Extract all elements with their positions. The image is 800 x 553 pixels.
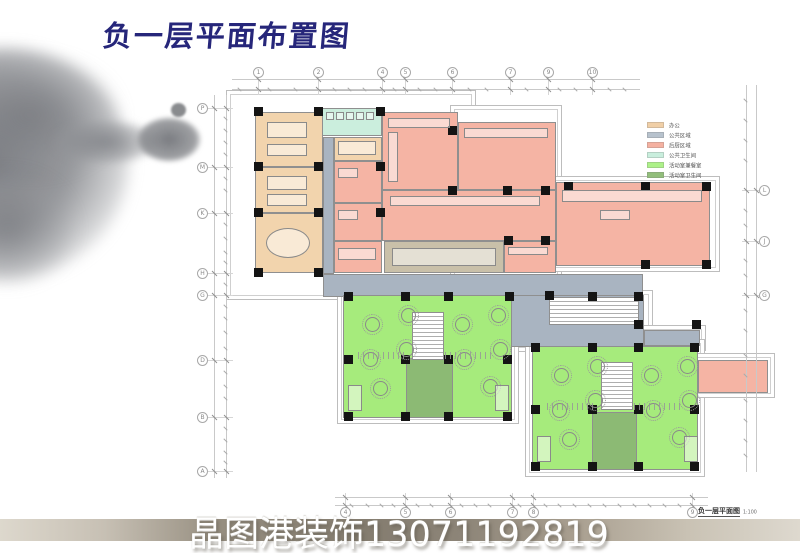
page-title: 负一层平面布置图 [101,13,353,55]
dimension-tick [622,87,626,91]
room-office [255,112,323,167]
furniture-desk [338,210,358,220]
axis-bubble: D [197,355,208,366]
column-marker [504,236,513,245]
axis-bubble: 9 [687,507,698,518]
column-marker [503,186,512,195]
dimension-tick [484,87,488,91]
axis-bubble: B [197,412,208,423]
furniture-dining-table [392,248,496,266]
column-marker [634,292,643,301]
drawing-name: 负一层平面图 [698,507,740,517]
furniture-round-table [493,342,508,357]
dimension-tick [573,87,577,91]
furniture-round-table [644,368,659,383]
column-marker [314,208,323,217]
column-marker [254,162,263,171]
column-marker [448,186,457,195]
column-marker [634,343,643,352]
axis-bubble: 6 [447,67,458,78]
room-kitchen [698,360,768,393]
axis-bubble: G [197,290,208,301]
furniture-desk [338,141,376,155]
room-activity_wc [592,412,637,470]
furniture-round-table [680,359,695,374]
dimension-tick [557,87,561,91]
furniture-counter [464,128,548,138]
legend-label: 公共卫生间 [669,151,696,159]
furniture-sofa [348,385,362,411]
furniture-counter [508,247,548,255]
axis-bubble: L [759,185,770,196]
furniture-wc-stall [336,112,344,120]
room-stair [412,312,444,360]
legend-label: 活动室兼餐室 [669,161,701,169]
column-marker [254,107,263,116]
furniture-round-table [401,308,416,323]
column-marker [344,412,353,421]
axis-bubble: K [197,208,208,219]
room-office [255,167,323,213]
furniture-desk [267,194,307,206]
axis-bubble: 1 [253,67,264,78]
axis-bubble: H [197,268,208,279]
axis-leader [207,360,233,361]
furniture-counter [388,132,398,182]
dimension-tick [647,503,651,507]
furniture-sofa [495,385,509,411]
axis-bubble: P [197,103,208,114]
axis-bubble: J [759,236,770,247]
column-marker [314,268,323,277]
axis-bubble: A [197,466,208,477]
furniture-round-table [562,432,577,447]
column-marker [444,412,453,421]
furniture-wc-stall [366,112,374,120]
page: 负一层平面布置图 124567910456789PMKHGDBALJG 办公公共… [0,0,800,553]
legend-label: 公共区域 [669,131,691,139]
column-marker [702,182,711,191]
legend-row-office: 办公 [647,122,705,128]
dimension-tick [662,503,666,507]
legend-label: 办公 [669,121,680,129]
legend-row-activity_wc: 活动室卫生间 [647,172,705,178]
column-marker [344,355,353,364]
furniture-seat-row [547,403,595,410]
column-marker [314,162,323,171]
column-marker [702,260,711,269]
drawing-scale: 1:100 [743,509,757,515]
axis-bubble: 7 [505,67,516,78]
column-marker [692,320,701,329]
dimension-line [756,85,757,472]
furniture-desk [267,122,307,138]
furniture-seat-row [358,352,406,359]
furniture-sofa [684,436,698,462]
column-marker [401,292,410,301]
column-marker [588,462,597,471]
furniture-seat-row [634,403,684,410]
axis-leader [207,417,233,418]
floor-plan: 124567910456789PMKHGDBALJG [0,0,800,553]
axis-bubble: 2 [313,67,324,78]
legend-swatch-activity_wc [647,172,664,178]
legend-swatch-kitchen [647,142,664,148]
column-marker [545,291,554,300]
legend-row-corridor: 公共区域 [647,132,705,138]
furniture-round-table [491,308,506,323]
legend-row-activity: 活动室兼餐室 [647,162,705,168]
furniture-round-table [682,393,697,408]
dimension-line [232,79,640,80]
room-kitchen [334,203,382,241]
column-marker [254,268,263,277]
legend-label: 活动室卫生间 [669,171,701,179]
furniture-sofa [537,436,551,462]
column-marker [503,412,512,421]
column-marker [531,405,540,414]
furniture-counter [388,118,450,128]
axis-leader [207,213,233,214]
furniture-round-table [373,381,388,396]
axis-bubble: M [197,162,208,173]
axis-leader [207,295,233,296]
column-marker [505,292,514,301]
room-stair [601,362,633,410]
axis-bubble: 10 [587,67,598,78]
legend-swatch-wc [647,152,664,158]
legend-row-kitchen: 后厨区域 [647,142,705,148]
furniture-counter [390,196,540,206]
furniture-wc-stall [326,112,334,120]
room-kitchen [504,241,556,273]
axis-leader [207,273,233,274]
column-marker [531,343,540,352]
dimension-tick [524,87,528,91]
legend-swatch-activity [647,162,664,168]
column-marker [690,462,699,471]
column-marker [344,292,353,301]
legend-swatch-office [647,122,664,128]
dimension-line [335,497,708,498]
room-corridor [323,137,334,274]
dimension-tick [677,503,681,507]
dimension-tick [617,503,621,507]
column-marker [503,355,512,364]
axis-bubble: 4 [377,67,388,78]
furniture-desk [338,168,358,178]
column-marker [376,162,385,171]
column-marker [376,208,385,217]
column-marker [541,186,550,195]
room-stair [549,297,639,325]
axis-leader [207,167,233,168]
column-marker [690,343,699,352]
column-marker [588,292,597,301]
furniture-round-table [365,317,380,332]
column-marker [588,343,597,352]
furniture-counter [600,210,630,220]
legend-label: 后厨区域 [669,141,691,149]
furniture-desk [267,176,307,190]
furniture-desk [338,248,376,260]
legend-row-wc: 公共卫生间 [647,152,705,158]
furniture-wc-stall [346,112,354,120]
dimension-tick [607,87,611,91]
axis-bubble: 9 [543,67,554,78]
column-marker [401,412,410,421]
axis-leader [207,471,233,472]
column-marker [641,260,650,269]
legend: 办公公共区域后厨区域公共卫生间活动室兼餐室活动室卫生间 [647,122,705,182]
column-marker [444,292,453,301]
furniture-seat-row [445,352,495,359]
column-marker [531,462,540,471]
axis-leader [207,108,233,109]
dimension-line [214,95,215,478]
column-marker [634,462,643,471]
column-marker [541,236,550,245]
room-activity_wc [406,358,453,418]
furniture-round-table [590,359,605,374]
column-marker [376,107,385,116]
furniture-wc-stall [356,112,364,120]
furniture-meeting-table [266,228,310,258]
dimension-line [746,85,747,472]
furniture-counter [562,190,702,202]
column-marker [254,208,263,217]
watermark-text: 晶图港装饰13071192819 [189,506,609,553]
furniture-round-table [554,368,569,383]
furniture-desk [267,144,307,156]
column-marker [314,107,323,116]
column-marker [634,320,643,329]
legend-swatch-corridor [647,132,664,138]
axis-bubble: G [759,290,770,301]
furniture-round-table [455,317,470,332]
axis-bubble: 5 [400,67,411,78]
dimension-tick [632,503,636,507]
